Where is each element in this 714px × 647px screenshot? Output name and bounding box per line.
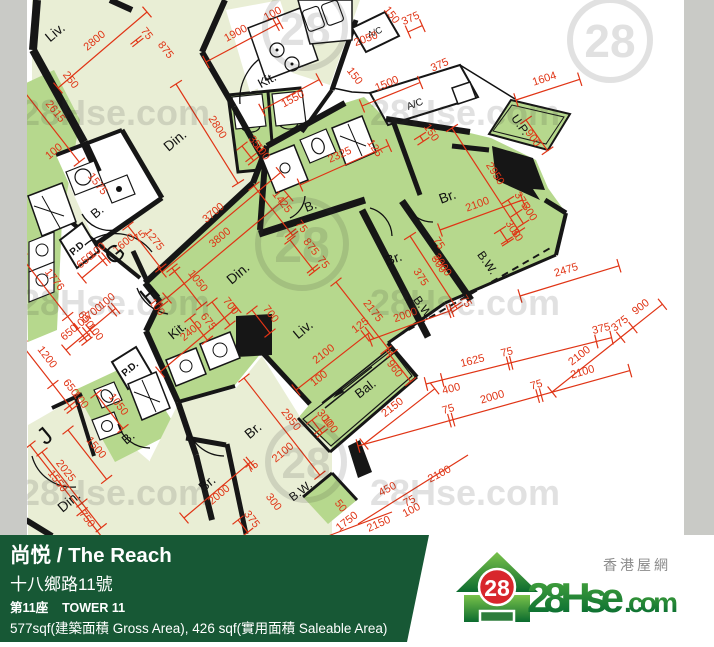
svg-text:28Hse.com: 28Hse.com <box>20 282 210 323</box>
svg-text:28: 28 <box>584 15 635 67</box>
svg-text:28: 28 <box>282 439 331 488</box>
svg-text:十八鄉路11號: 十八鄉路11號 <box>10 575 113 594</box>
svg-text:.com: .com <box>624 587 678 618</box>
svg-text:577sqf(建築面積 Gross Area), 426 s: 577sqf(建築面積 Gross Area), 426 sqf(實用面積 Sa… <box>10 620 387 636</box>
svg-text:28Hse.com: 28Hse.com <box>370 472 560 513</box>
svg-text:香港屋網: 香港屋網 <box>603 557 671 573</box>
svg-text:28Hse.com: 28Hse.com <box>370 282 560 323</box>
svg-text:28Hse.com: 28Hse.com <box>20 92 210 133</box>
svg-text:28Hse: 28Hse <box>527 574 624 621</box>
svg-text:尚悦 / The Reach: 尚悦 / The Reach <box>10 543 172 567</box>
svg-text:28: 28 <box>484 575 510 601</box>
svg-text:28Hse.com: 28Hse.com <box>370 92 560 133</box>
svg-text:28: 28 <box>279 3 330 55</box>
svg-text:28Hse.com: 28Hse.com <box>20 472 210 513</box>
svg-text:28: 28 <box>274 217 330 273</box>
svg-text:第11座 TOWER 11: 第11座 TOWER 11 <box>10 600 125 615</box>
